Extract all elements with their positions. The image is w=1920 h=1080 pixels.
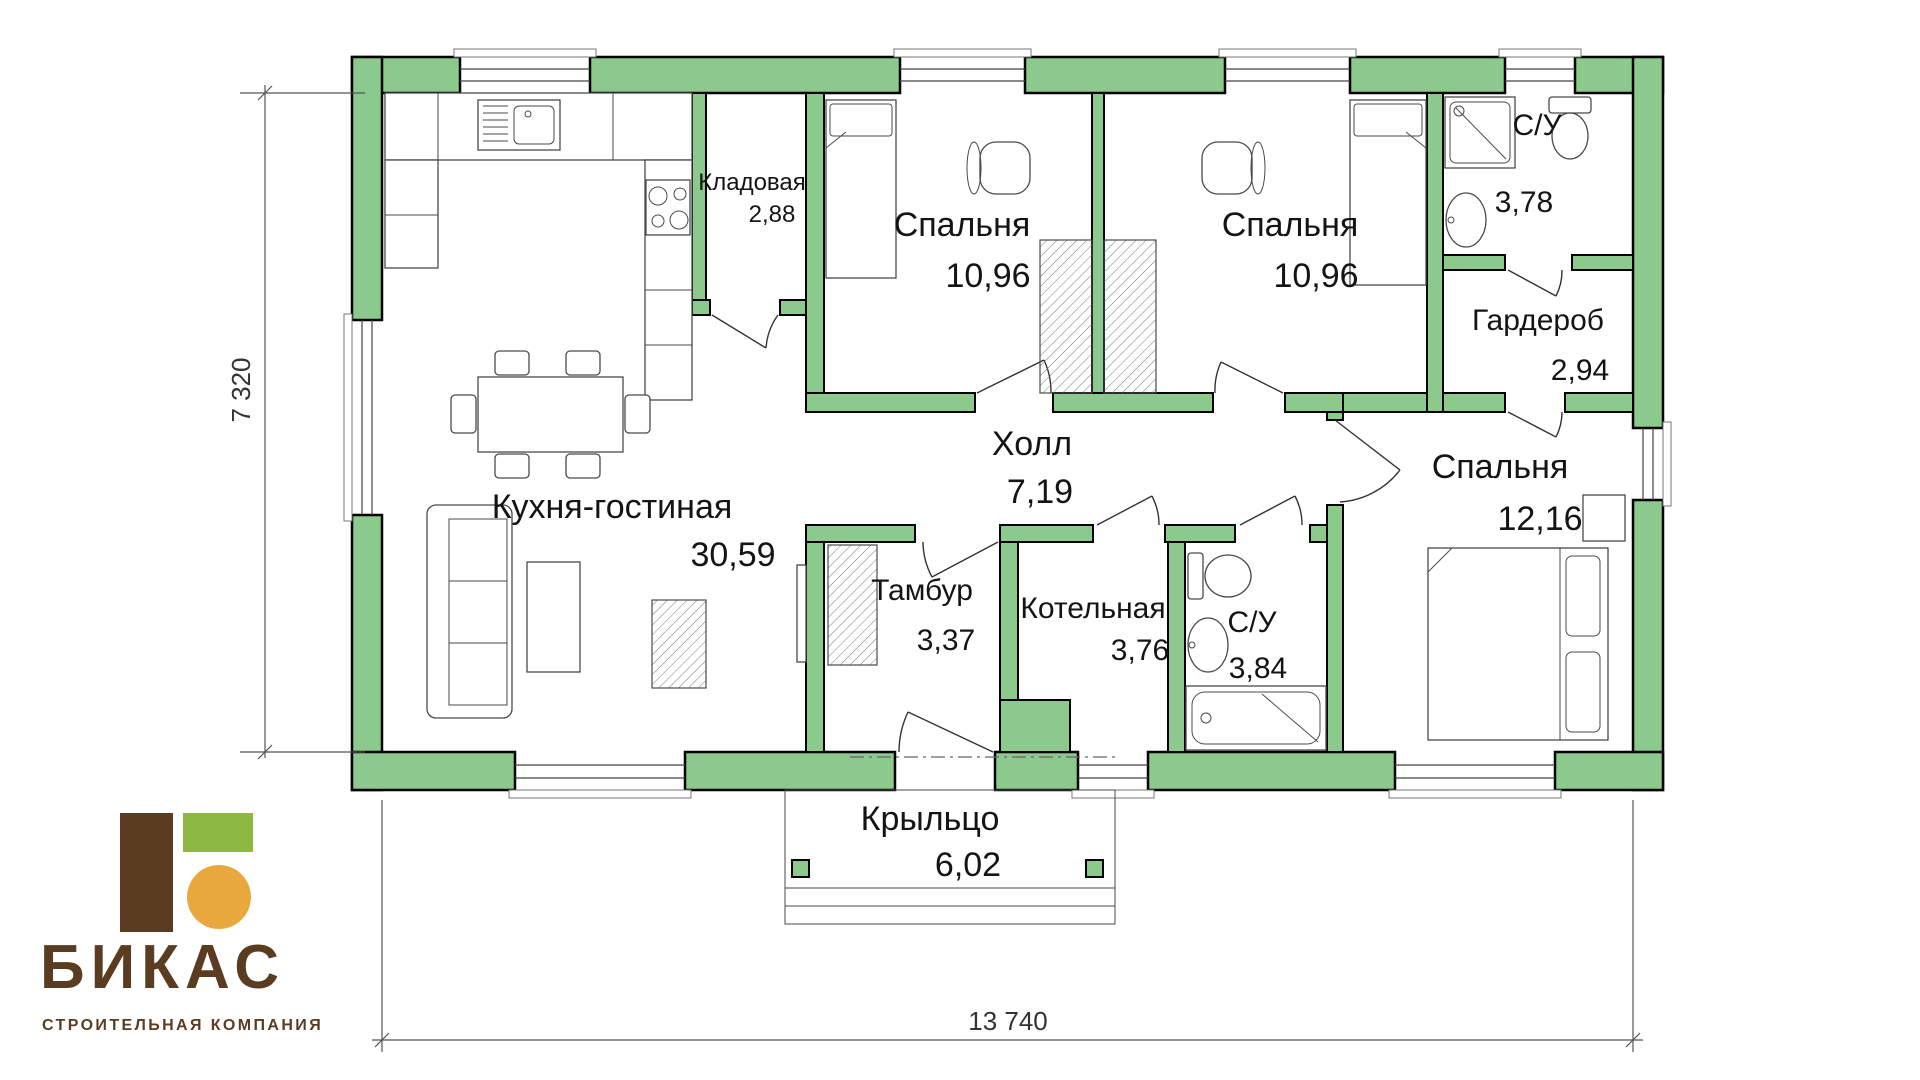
living-closet: [652, 600, 706, 688]
sofa: [427, 505, 512, 718]
label-vestibule: Тамбур: [871, 574, 973, 607]
porch-post-left: [792, 860, 809, 877]
label-pantry-area: 2,88: [749, 201, 796, 228]
dining-table: [451, 351, 650, 478]
dimension-depth-label: 7 320: [226, 357, 256, 422]
logo-orange-circle-icon: [187, 865, 251, 929]
window-boiler-bottom: [1072, 765, 1154, 798]
window-living-bottom: [509, 765, 691, 798]
label-kitchen-living-area: 30,59: [690, 536, 775, 574]
label-pantry: Кладовая: [698, 169, 806, 196]
label-bedroom1: Спальня: [894, 206, 1031, 244]
wardrobe-bedroom2: [1104, 240, 1156, 393]
window-bathroom1: [1499, 49, 1581, 81]
window-bedroom2: [1219, 49, 1356, 81]
logo-brown-block-icon: [120, 813, 173, 932]
dimension-bottom: 13 740: [372, 800, 1643, 1052]
sink-icon-1: [1446, 193, 1486, 247]
label-porch: Крыльцо: [861, 800, 1000, 838]
boiler-wall-step: [1000, 700, 1070, 752]
label-bathroom1-area: 3,78: [1495, 186, 1553, 219]
tv-console: [797, 565, 806, 662]
label-vestibule-area: 3,37: [917, 624, 975, 657]
label-bedroom3-area: 12,16: [1497, 500, 1582, 538]
logo-green-block-icon: [183, 813, 253, 852]
label-bathroom2: С/У: [1227, 606, 1277, 639]
porch-post-right: [1086, 860, 1103, 877]
nightstand: [1583, 495, 1625, 541]
door-wardrobe: [1508, 412, 1562, 437]
label-bedroom3: Спальня: [1432, 448, 1569, 486]
door-entrance: [850, 712, 1115, 757]
bed-single-2: [1350, 100, 1426, 285]
label-bedroom1-area: 10,96: [945, 257, 1030, 295]
door-bathroom2: [1240, 496, 1302, 525]
window-bedroom3-bottom: [1389, 765, 1561, 798]
company-logo: БИКАС СТРОИТЕЛЬНАЯ КОМПАНИЯ: [40, 805, 360, 1065]
label-bathroom2-area: 3,84: [1229, 652, 1287, 685]
label-boiler: Котельная: [1020, 592, 1165, 625]
door-bathroom1: [1508, 270, 1562, 296]
coffee-table: [527, 562, 580, 672]
door-vestibule: [923, 542, 998, 577]
vestibule-closet: [828, 545, 877, 665]
company-tagline: СТРОИТЕЛЬНАЯ КОМПАНИЯ: [42, 1017, 362, 1035]
door-boiler: [1097, 496, 1159, 525]
label-bedroom2: Спальня: [1222, 206, 1359, 244]
floor-plan-page: Кухня-гостиная 30,59 Кладовая 2,88 Спаль…: [0, 0, 1920, 1080]
kitchen-sink-icon: [478, 100, 560, 150]
label-wardrobe: Гардероб: [1472, 304, 1604, 337]
door-bedroom3: [1335, 420, 1400, 502]
bathtub-icon: [1186, 686, 1326, 750]
window-bedroom1: [894, 49, 1031, 81]
door-bedroom2: [1215, 362, 1283, 393]
armchair-icon-1: [967, 142, 1030, 194]
wardrobe-bedroom1: [1040, 240, 1092, 393]
window-kitchen: [454, 49, 596, 81]
toilet-icon-2: [1188, 553, 1251, 599]
bed-single-1: [826, 100, 896, 278]
label-hall: Холл: [992, 425, 1072, 463]
window-bedroom3-right: [1643, 422, 1671, 506]
door-pantry: [712, 315, 778, 348]
label-wardrobe-area: 2,94: [1551, 354, 1609, 387]
window-living-left: [344, 314, 372, 521]
dimension-width-label: 13 740: [968, 1006, 1048, 1036]
label-boiler-area: 3,76: [1111, 634, 1169, 667]
stove-icon: [646, 180, 690, 235]
label-bathroom1: С/У: [1512, 109, 1562, 142]
porch-step-2: [785, 906, 1115, 924]
sink-icon-2: [1188, 618, 1228, 672]
armchair-icon-2: [1202, 142, 1265, 194]
label-bedroom2-area: 10,96: [1273, 257, 1358, 295]
label-porch-area: 6,02: [935, 846, 1001, 884]
porch-step-1: [785, 888, 1115, 906]
shower-icon: [1445, 97, 1515, 168]
company-name: БИКАС: [40, 937, 360, 999]
label-kitchen-living: Кухня-гостиная: [492, 488, 733, 526]
bed-double: [1428, 548, 1608, 740]
label-hall-area: 7,19: [1007, 473, 1073, 511]
